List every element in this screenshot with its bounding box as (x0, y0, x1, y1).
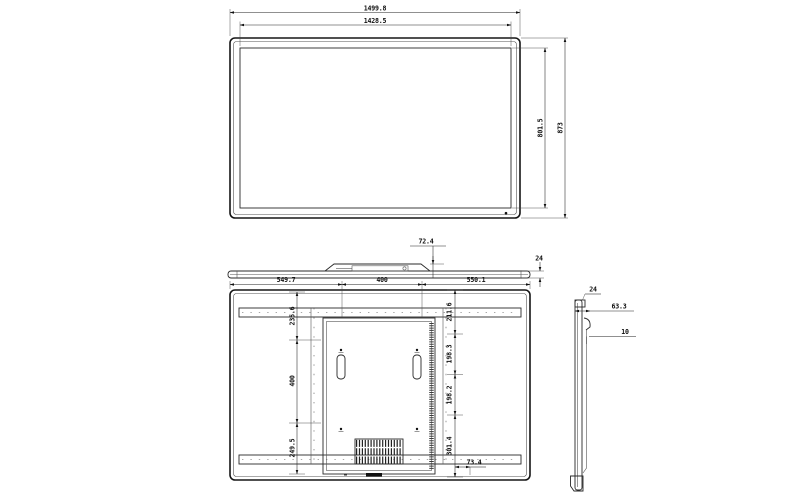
small-mark (344, 474, 347, 476)
front-view-dimensions: 1499.8 1428.5 801.5 873 (230, 5, 568, 219)
dim-front-active-width: 1428.5 (364, 17, 387, 25)
display-dimension-drawing: 1499.8 1428.5 801.5 873 72.4 (0, 0, 800, 500)
dim-side-thickness: 24 (589, 286, 597, 294)
label-mark (366, 473, 382, 477)
dim-back-left-middle: 400 (289, 375, 297, 387)
back-view (230, 290, 530, 480)
technical-drawing-page: 1499.8 1428.5 801.5 873 72.4 (0, 0, 800, 500)
side-top-cap (575, 300, 585, 307)
side-mount-hook (584, 318, 590, 330)
dim-top-thickness: 24 (535, 255, 543, 263)
side-view-dimensions: 24 63.3 10 (575, 286, 636, 345)
back-top-rail (239, 308, 521, 317)
top-mount-bracket (325, 264, 430, 271)
dim-side-depth: 63.3 (611, 303, 626, 311)
dim-back-right-4: 301.4 (446, 436, 454, 455)
dim-front-active-height: 801.5 (537, 118, 545, 137)
side-panel-body (575, 300, 582, 490)
dim-back-right-2: 198.3 (446, 344, 454, 363)
side-back-cover (583, 330, 587, 473)
ir-sensor-dot (505, 212, 508, 215)
mounting-hole-marker (415, 349, 420, 353)
front-view (230, 38, 520, 218)
vesa-slot-left (337, 355, 345, 379)
side-bottom-foot (571, 476, 584, 491)
front-active-area (240, 48, 511, 208)
side-view (571, 300, 591, 491)
front-outer-bezel (230, 38, 520, 218)
vent-grille (355, 439, 403, 464)
mounting-hole-marker (339, 428, 344, 432)
back-mount-plate-inner (327, 322, 432, 471)
dim-back-right-1: 211.6 (446, 302, 454, 321)
top-mount-plate (352, 266, 408, 271)
back-mount-plate (323, 318, 435, 474)
dim-back-top-center: 400 (376, 276, 388, 284)
dim-back-top-left: 549.7 (277, 276, 296, 284)
dim-back-left-bottom: 249.5 (289, 438, 297, 457)
dim-back-bottom-offset: 73.4 (466, 459, 481, 467)
dim-back-left-top: 235.6 (289, 306, 297, 325)
top-mount-hole (403, 267, 406, 270)
dim-front-outer-height: 873 (557, 122, 565, 134)
front-inner-bezel (234, 42, 517, 215)
mounting-hole-marker (415, 428, 420, 432)
dim-side-step: 10 (621, 328, 629, 336)
dim-back-right-3: 198.2 (446, 385, 454, 404)
dim-back-top-right: 550.1 (467, 276, 486, 284)
dim-front-outer-width: 1499.8 (364, 5, 387, 13)
mounting-hole-marker (339, 349, 344, 353)
vesa-slot-right (413, 355, 421, 379)
dim-top-mount-height: 72.4 (418, 238, 433, 246)
